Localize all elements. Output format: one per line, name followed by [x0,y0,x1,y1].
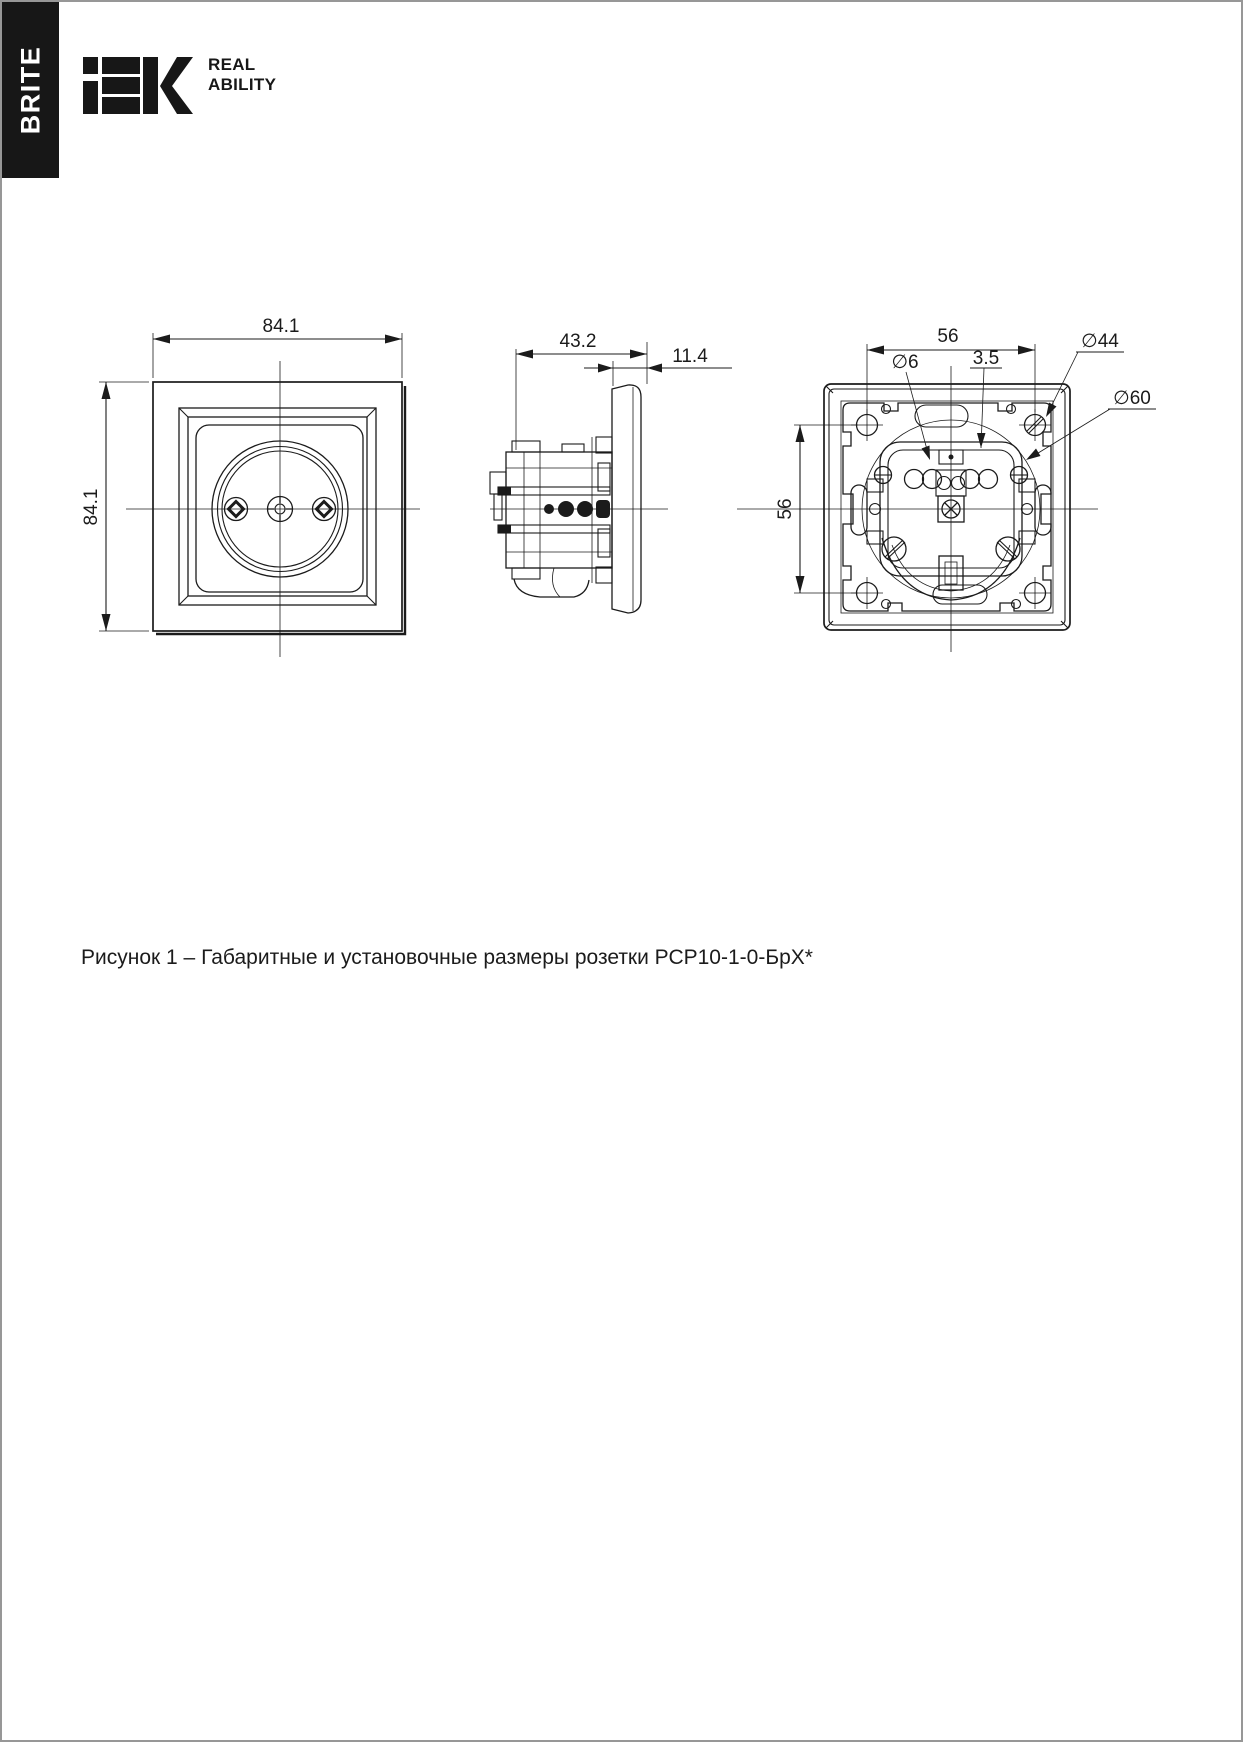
hole-diameter-leader: ∅6 [891,352,930,460]
dim-back-spacing-vertical: 56 [775,498,796,519]
front-view: 84.1 84.1 [81,316,420,657]
figure-caption: Рисунок 1 – Габаритные и установочные ра… [81,946,813,970]
front-frame-bevel-outer [179,408,376,605]
document-page: BRITE REAL ABILITY [0,0,1243,1742]
dim-back-hole-diameter: ∅6 [891,352,918,373]
claw-tab-right [1019,479,1051,544]
support-plate [843,403,1051,611]
dim-side-frame-thickness: 11.4 [672,346,708,367]
dim-back-screw-circle: ∅44 [1081,331,1119,352]
central-screw [938,496,964,522]
front-frame-outer [153,382,402,631]
bottom-slot [933,585,987,604]
back-frame-opening [841,401,1053,613]
front-height-dimension: 84.1 [81,382,149,631]
dim-side-depth: 43.2 [560,331,597,352]
back-view: 56 56 ∅6 3.5 [737,326,1156,652]
claw-tab-left [851,479,883,544]
side-depth-dimension: 43.2 [516,331,647,450]
dim-back-recess-diameter: ∅60 [1113,388,1151,409]
figure-drawing: 84.1 84.1 [0,0,1243,1742]
side-view: 43.2 11.4 [490,331,732,613]
top-slot [915,405,968,427]
side-view-mechanism [490,437,612,597]
mount-hole-bottom-right [1019,577,1051,609]
dim-back-gap: 3.5 [973,348,999,369]
side-thickness-dimension: 11.4 [584,346,732,386]
dim-front-height: 84.1 [81,489,102,526]
front-width-dimension: 84.1 [153,316,402,378]
mount-hole-top-right-screw [1019,409,1051,441]
side-frame-plate [612,385,641,613]
dim-front-width: 84.1 [263,316,300,337]
dim-back-spacing-horizontal: 56 [937,326,958,347]
front-frame-bevel-inner [188,417,367,596]
